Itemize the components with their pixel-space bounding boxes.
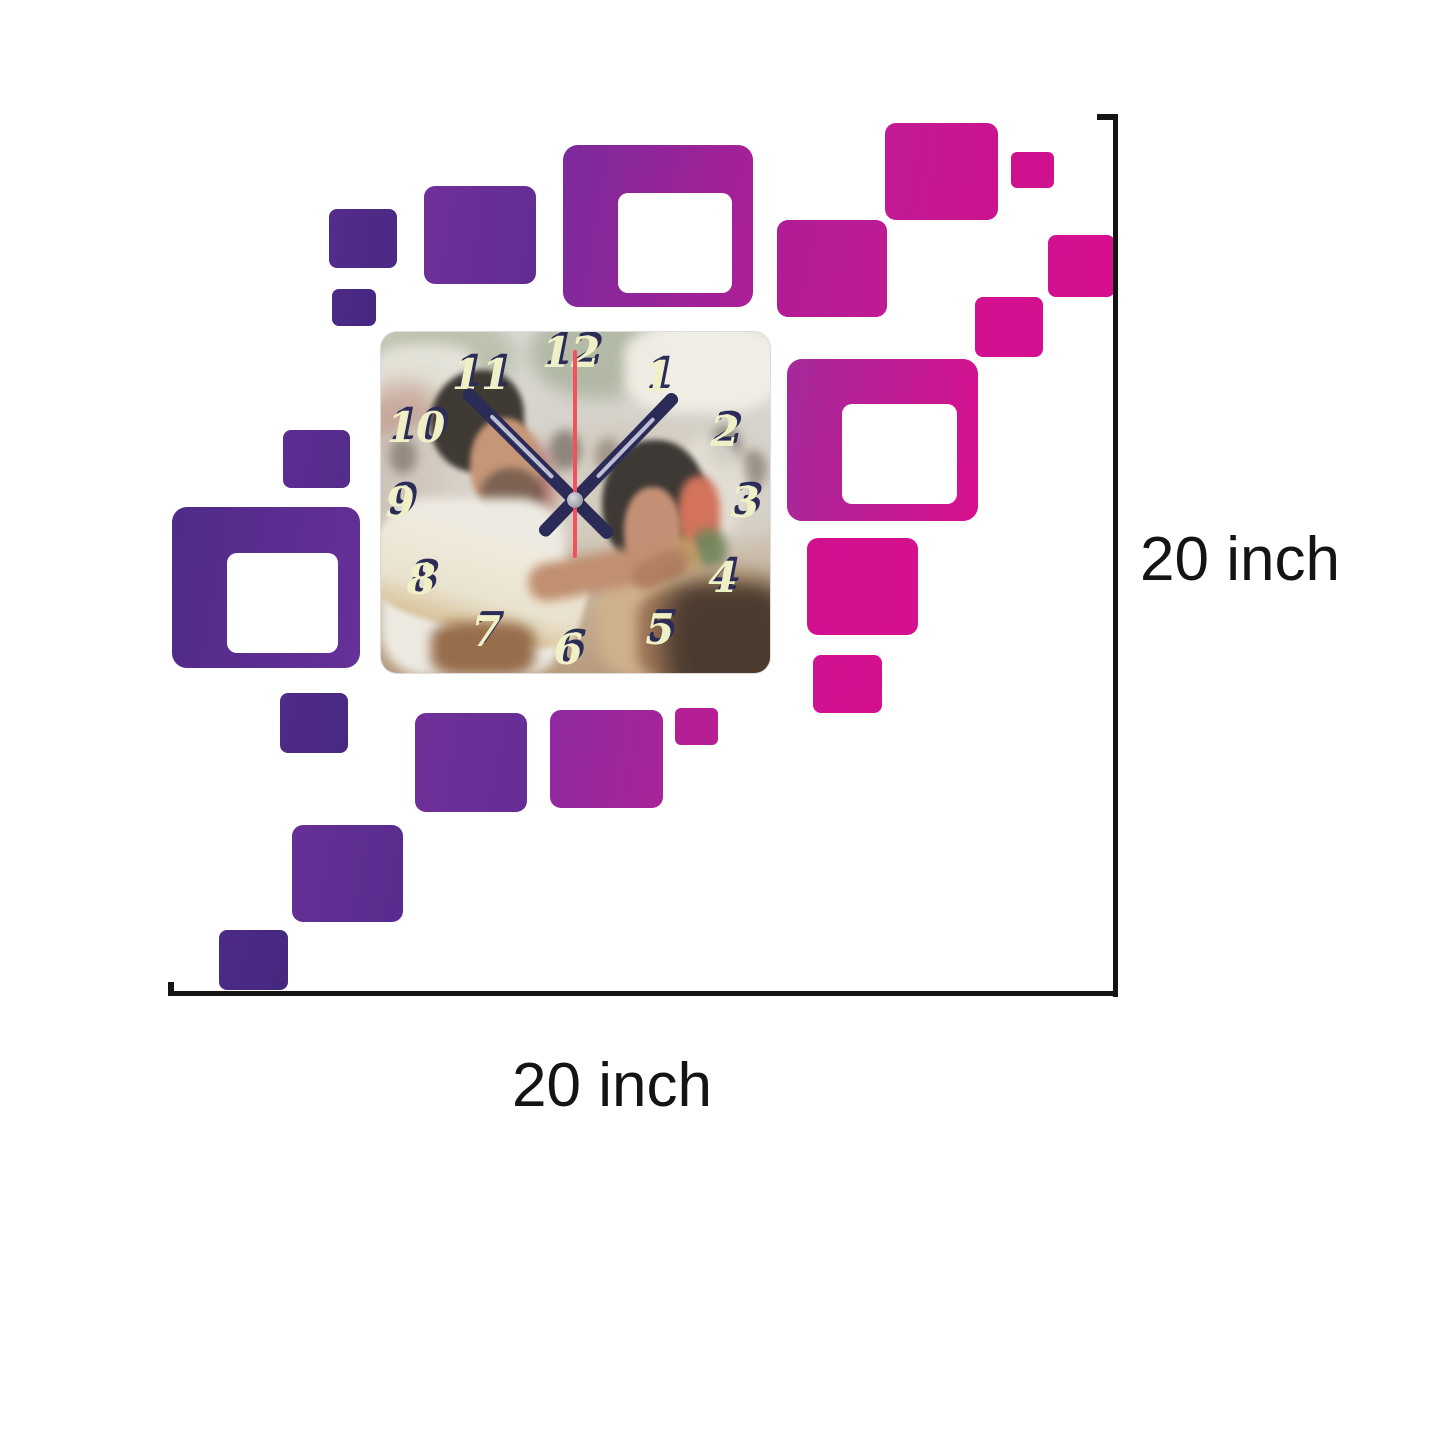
clock-numeral-9: 9 xyxy=(385,482,414,524)
clock-numeral-10: 10 xyxy=(387,407,445,449)
clock-numeral-11: 11 xyxy=(452,354,510,396)
dimension-line-vertical xyxy=(1113,114,1118,997)
height-dimension-label: 20 inch xyxy=(1140,524,1340,595)
decor-square xyxy=(813,655,882,713)
decor-square xyxy=(807,538,918,635)
dimension-line-horizontal-cap xyxy=(168,982,174,996)
decor-square-hollow xyxy=(172,507,360,668)
dimension-line-horizontal xyxy=(168,991,1118,996)
clock-numeral-3: 3 xyxy=(730,482,759,524)
decor-square-hole xyxy=(842,404,957,504)
decor-square xyxy=(329,209,397,268)
clock-numeral-5: 5 xyxy=(645,609,674,651)
decor-squares-layer xyxy=(0,0,1445,1445)
decor-square xyxy=(424,186,536,284)
decor-square xyxy=(219,930,288,990)
decor-square-hollow xyxy=(787,359,978,521)
clock-numeral-2: 2 xyxy=(710,411,739,453)
decor-square xyxy=(283,430,350,488)
decor-square xyxy=(1011,152,1054,188)
width-dimension-label: 20 inch xyxy=(512,1050,712,1121)
decor-square xyxy=(975,297,1043,357)
second-hand-bar xyxy=(573,350,577,558)
decor-square-hole xyxy=(227,553,338,653)
clock-numeral-4: 4 xyxy=(708,557,737,599)
decor-square xyxy=(332,289,376,326)
decor-square xyxy=(777,220,887,317)
clock-numeral-12: 12 xyxy=(542,332,600,374)
decor-square-hole xyxy=(618,193,732,293)
decor-square xyxy=(675,708,718,745)
second-hand xyxy=(573,350,577,558)
clock-numeral-6: 6 xyxy=(553,629,582,671)
clock-numeral-8: 8 xyxy=(406,559,435,601)
decor-square xyxy=(885,123,998,220)
decor-square xyxy=(280,693,348,753)
decor-square-hollow xyxy=(563,145,753,307)
decor-square xyxy=(1048,235,1115,297)
photo-clock: 121234567891011 xyxy=(381,332,770,673)
decor-square xyxy=(550,710,663,808)
decor-square xyxy=(415,713,527,812)
dimension-line-vertical-cap xyxy=(1097,114,1118,120)
clock-center-hub xyxy=(567,492,583,508)
product-spec-image: 20 inch 20 inch 121234567891011 xyxy=(0,0,1445,1445)
clock-numeral-7: 7 xyxy=(471,611,500,653)
decor-square xyxy=(292,825,403,922)
